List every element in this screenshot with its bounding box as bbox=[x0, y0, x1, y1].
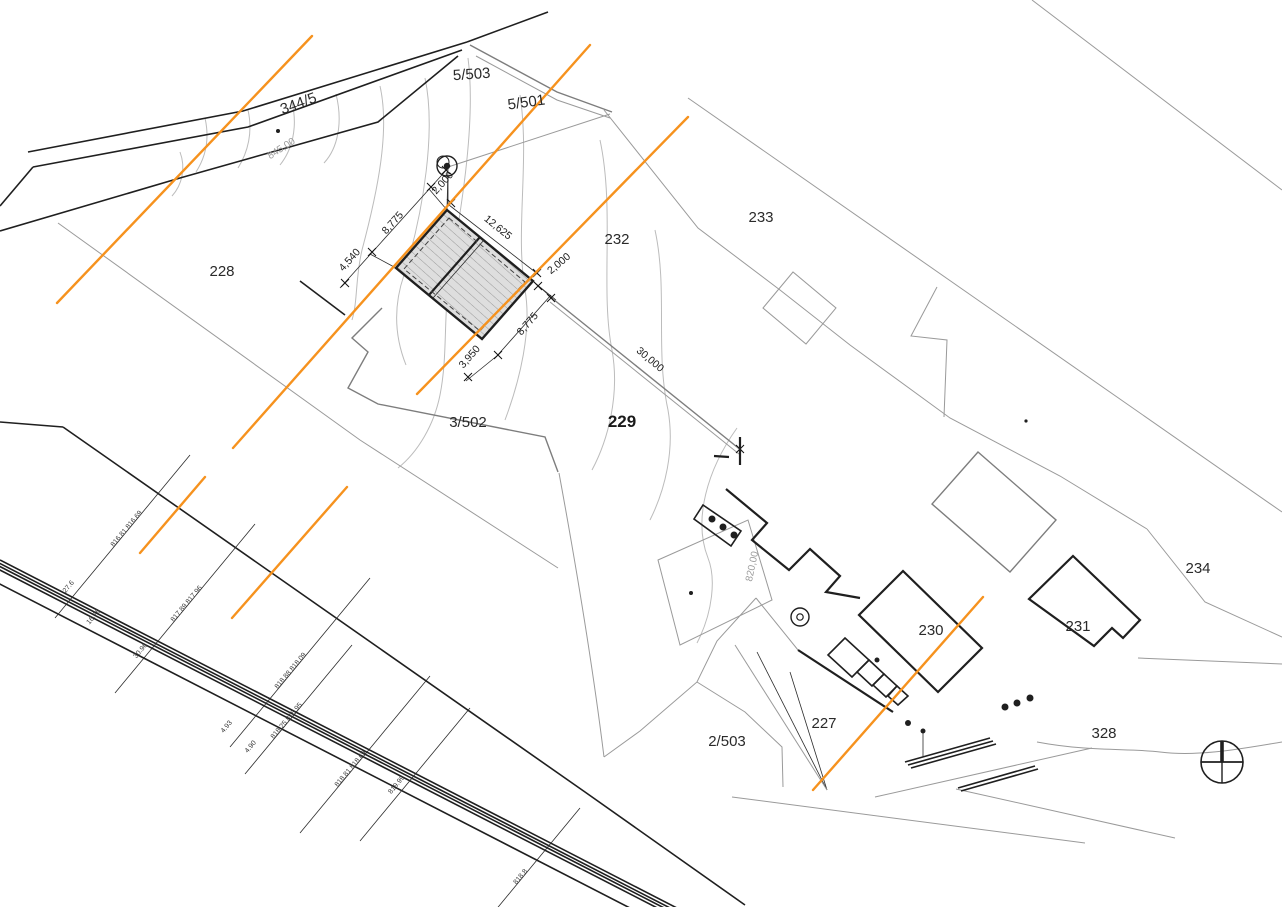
dim-3950: 3,950 bbox=[457, 343, 483, 371]
parcel-label-231: 231 bbox=[1065, 618, 1090, 635]
dim-8775-topleft: 8,775 bbox=[380, 209, 407, 237]
road-label-4: 818.81 818.69 bbox=[334, 750, 368, 789]
parcel-label-229: 229 bbox=[608, 412, 636, 431]
contour-label-820: 820,00 bbox=[744, 550, 761, 583]
road-label-1: 817.89 817.96 bbox=[170, 585, 204, 624]
contour-label-845: 845,00 bbox=[266, 136, 298, 162]
dim-4540: 4,540 bbox=[337, 246, 364, 274]
parcel-label-234: 234 bbox=[1185, 560, 1210, 577]
parcel-labels: 344/5 5/503 5/501 228 232 233 229 3/502 … bbox=[209, 65, 1210, 750]
parcel-label-3-502: 3/502 bbox=[449, 414, 487, 431]
parcel-label-328: 328 bbox=[1091, 725, 1116, 742]
site-plan-canvas: 344/5 5/503 5/501 228 232 233 229 3/502 … bbox=[0, 0, 1282, 907]
contour-lines bbox=[172, 58, 737, 643]
dim-8775-bottomright: 8,775 bbox=[515, 310, 541, 338]
road-label-9: 4.93 bbox=[220, 719, 234, 734]
existing-buildings bbox=[694, 437, 1140, 791]
parcel-label-5-501: 5/501 bbox=[507, 92, 547, 114]
road-label-0: 816.81 816.69 bbox=[110, 510, 144, 549]
boundary-30000 bbox=[533, 281, 742, 454]
north-compass bbox=[1201, 741, 1243, 783]
dim-2000-top: 2,000 bbox=[430, 169, 457, 197]
dim-12625: 12,625 bbox=[482, 213, 515, 243]
parcel-label-5-503: 5/503 bbox=[452, 65, 491, 85]
parcel-label-344-5: 344/5 bbox=[278, 89, 319, 118]
parcel-label-2-503: 2/503 bbox=[708, 733, 746, 750]
road-label-11: 818.8 bbox=[513, 868, 530, 886]
point-symbols bbox=[276, 129, 1243, 783]
parcel-label-232: 232 bbox=[604, 231, 629, 248]
road-label-6: 27.6 bbox=[62, 579, 76, 594]
road-label-10: 4.90 bbox=[244, 739, 258, 754]
road-label-2: 818.88 818.09 bbox=[274, 652, 308, 691]
contour-labels: 845,00 820,00 bbox=[266, 136, 761, 583]
parcel-label-230: 230 bbox=[918, 622, 943, 639]
utility-lines-orange bbox=[57, 36, 983, 790]
dim-2000-right: 2,000 bbox=[545, 251, 573, 277]
parcel-label-227: 227 bbox=[811, 715, 836, 732]
parcel-label-233: 233 bbox=[748, 209, 773, 226]
manhole-circle-icon bbox=[791, 608, 809, 626]
road-bundle bbox=[0, 455, 745, 907]
site-plan-drawing: 344/5 5/503 5/501 228 232 233 229 3/502 … bbox=[0, 0, 1282, 907]
parcel-label-228: 228 bbox=[209, 263, 234, 280]
road-elevation-labels: 816.81 816.69 817.89 817.96 818.88 818.0… bbox=[62, 510, 529, 886]
